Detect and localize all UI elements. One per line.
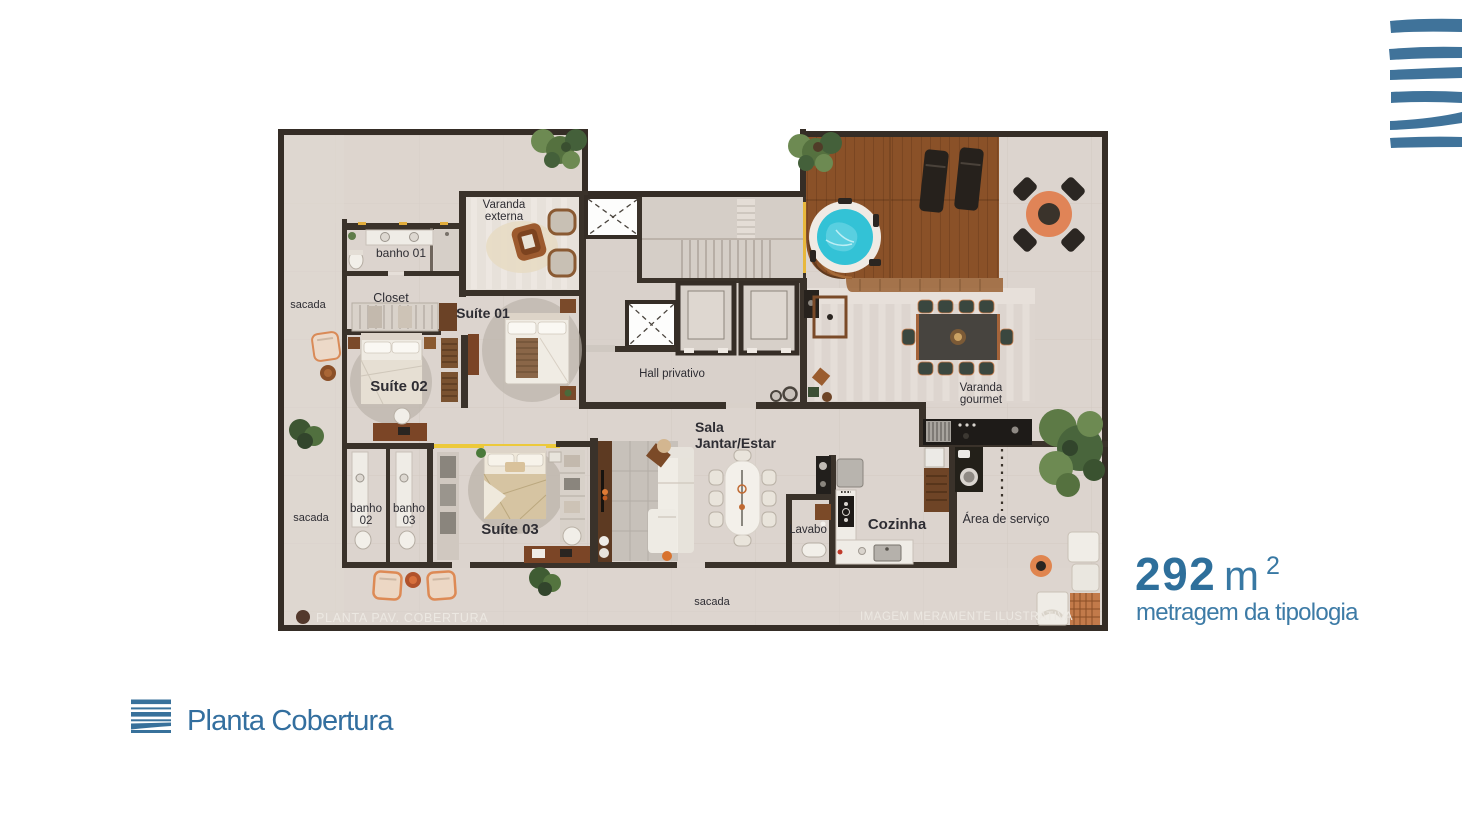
svg-text:metragem da tipologia: metragem da tipologia <box>1136 599 1359 626</box>
svg-text:gourmet: gourmet <box>960 394 1003 406</box>
svg-text:sacada: sacada <box>694 596 730 608</box>
svg-text:Sala: Sala <box>695 419 724 435</box>
svg-text:Suíte 01: Suíte 01 <box>456 305 510 321</box>
svg-text:sacada: sacada <box>293 512 329 524</box>
svg-text:externa: externa <box>485 211 524 223</box>
svg-text:2: 2 <box>1266 552 1280 580</box>
svg-text:Planta Cobertura: Planta Cobertura <box>187 705 394 737</box>
svg-text:Suíte 02: Suíte 02 <box>370 378 428 395</box>
svg-text:Lavabo: Lavabo <box>789 524 827 536</box>
svg-text:m: m <box>1224 552 1259 599</box>
svg-text:Closet: Closet <box>373 291 409 305</box>
svg-text:banho: banho <box>393 503 425 515</box>
svg-text:banho: banho <box>350 503 382 515</box>
svg-text:03: 03 <box>403 515 416 527</box>
svg-text:292: 292 <box>1135 548 1216 600</box>
svg-text:banho 01: banho 01 <box>376 246 426 260</box>
svg-text:PLANTA PAV. COBERTURA: PLANTA PAV. COBERTURA <box>316 611 488 625</box>
svg-text:IMAGEM MERAMENTE ILUSTRATIVA: IMAGEM MERAMENTE ILUSTRATIVA <box>860 611 1073 623</box>
svg-text:Varanda: Varanda <box>483 199 526 211</box>
svg-text:Suíte 03: Suíte 03 <box>481 521 539 538</box>
svg-text:Jantar/Estar: Jantar/Estar <box>695 435 776 451</box>
svg-text:sacada: sacada <box>290 299 326 311</box>
svg-text:Hall privativo: Hall privativo <box>639 368 705 380</box>
svg-text:Cozinha: Cozinha <box>868 516 927 533</box>
svg-text:Área de serviço: Área de serviço <box>963 511 1050 526</box>
svg-text:Varanda: Varanda <box>960 382 1003 394</box>
svg-text:02: 02 <box>360 515 373 527</box>
